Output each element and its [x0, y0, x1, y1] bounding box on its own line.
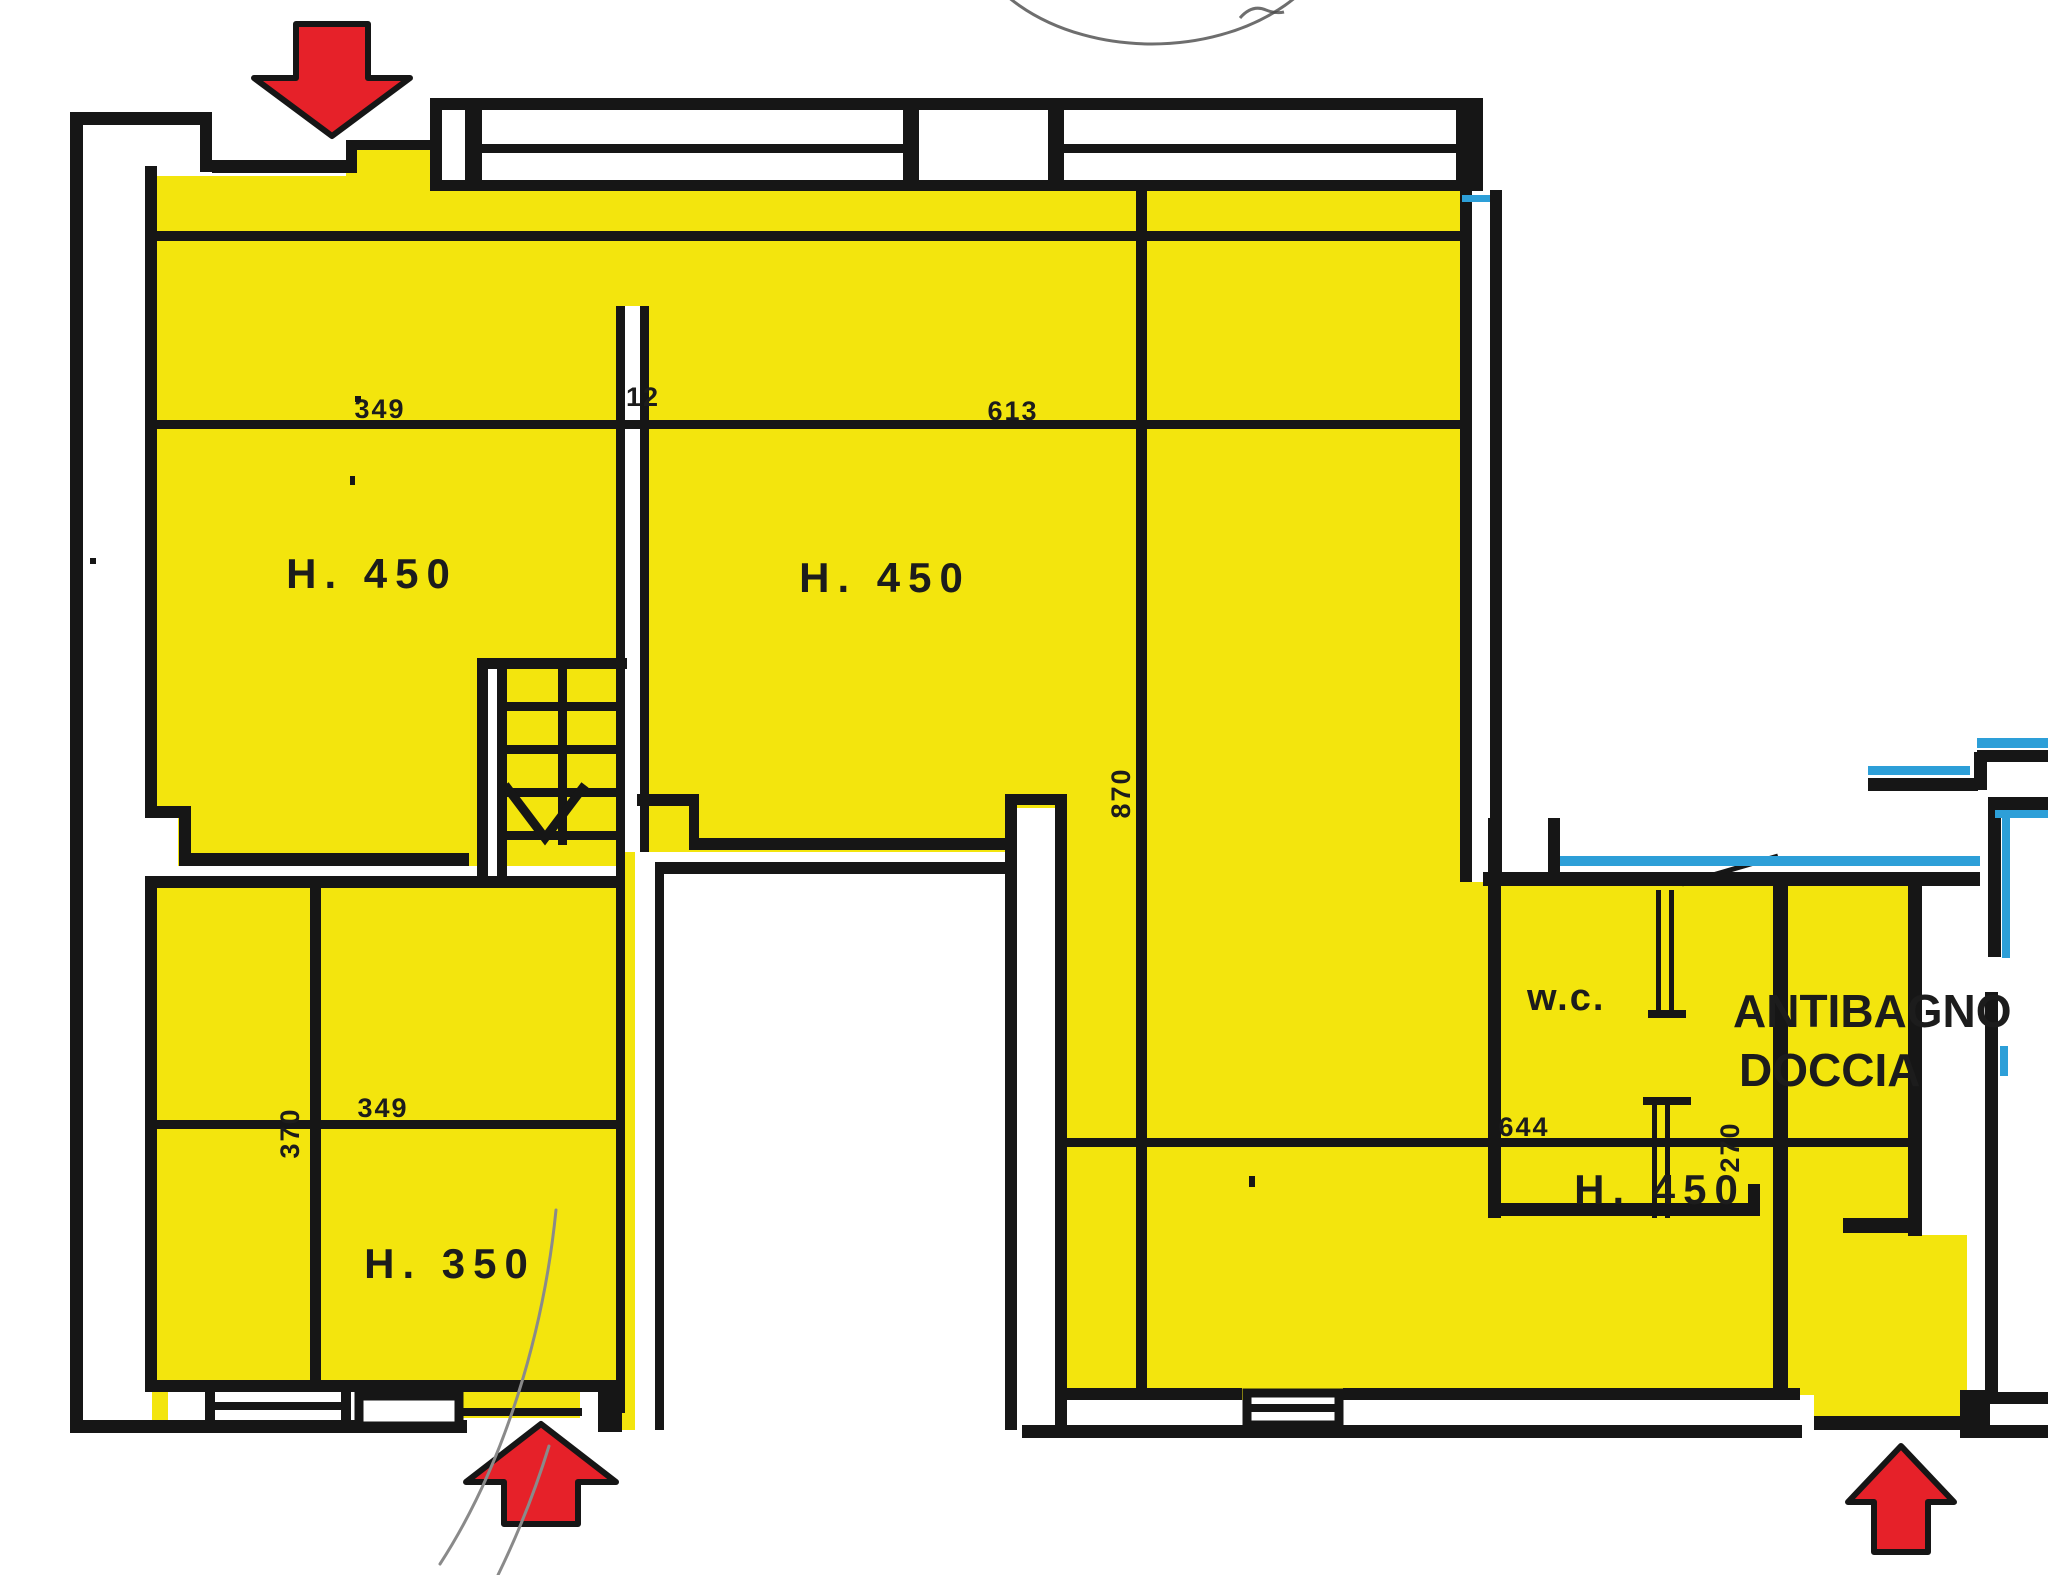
wall-gap	[152, 866, 622, 876]
window-mullion	[1456, 98, 1483, 191]
wc-wall	[1488, 886, 1501, 1218]
window-mullion	[1048, 98, 1064, 191]
terrace-edge	[1977, 750, 2048, 762]
window-mullion	[430, 98, 442, 191]
window-mullion	[903, 98, 919, 191]
wall-cavity	[83, 125, 145, 1430]
blue-line	[1560, 856, 1980, 866]
wall	[655, 862, 664, 1430]
threshold	[1814, 1416, 1962, 1430]
door-foot	[1648, 1010, 1686, 1018]
speck	[355, 396, 361, 402]
wall	[1005, 797, 1017, 1430]
threshold	[463, 1408, 582, 1416]
wall	[1993, 797, 2048, 810]
shaft-wall	[1488, 818, 1500, 876]
speck	[1249, 1176, 1255, 1187]
wall	[1990, 1425, 2048, 1438]
stair-wall-core	[488, 664, 497, 880]
entrance-arrow-top	[254, 24, 410, 136]
wall-notch	[145, 818, 178, 866]
blue-line	[2000, 1046, 2008, 1076]
dimension-label: 370	[275, 1107, 305, 1158]
blue-line	[1462, 195, 1490, 202]
wall	[1985, 992, 1998, 1395]
blue-line	[2002, 812, 2010, 958]
wall	[1022, 1425, 1802, 1438]
wall-cavity	[1472, 202, 1490, 882]
wall	[655, 862, 1012, 874]
speck	[1058, 1016, 1063, 1022]
door-leaf	[1656, 890, 1661, 1016]
wall	[346, 140, 438, 150]
dimension-label: 270	[1715, 1121, 1745, 1172]
scanned-floor-plan: H. 450 H. 450 H. 350 H. 450 w.c. ANTIBAG…	[0, 0, 2048, 1575]
wall	[145, 166, 157, 812]
dimension-line	[1060, 1138, 1912, 1147]
floor-plan-drawing: H. 450 H. 450 H. 350 H. 450 w.c. ANTIBAG…	[0, 0, 2048, 1575]
room-height-label: H. 450	[799, 554, 971, 601]
wall-channel	[1017, 808, 1055, 1430]
wall	[152, 876, 622, 888]
wall	[1773, 880, 1788, 1395]
blue-line	[1868, 766, 1970, 775]
door-leaf	[1669, 890, 1674, 1016]
wall	[1055, 1388, 1242, 1400]
wall	[689, 838, 1009, 850]
wall	[1055, 797, 1067, 1430]
wall-stub	[1843, 1218, 1917, 1233]
window-glass-line	[205, 1402, 351, 1410]
dimension-label: 613	[987, 396, 1038, 426]
room-height-label: H. 350	[364, 1240, 536, 1287]
speck	[350, 476, 355, 485]
door-gap	[1800, 1395, 1814, 1440]
window-mullion	[465, 98, 482, 191]
wall	[157, 1380, 622, 1392]
wall	[1460, 190, 1472, 882]
wall	[70, 112, 83, 1433]
window-frame	[430, 98, 1483, 110]
room-name-label: w.c.	[1526, 977, 1605, 1019]
wall-inner-line	[152, 231, 1464, 241]
room-name-label: DOCCIA	[1739, 1044, 1920, 1096]
bottom-wall-cavity	[1055, 1400, 1800, 1425]
wall	[212, 160, 352, 173]
dimension-label: 870	[1106, 767, 1136, 818]
wall	[1005, 794, 1067, 805]
wall	[70, 112, 212, 125]
wc-wall	[1748, 1184, 1760, 1216]
dividing-wall	[1136, 190, 1147, 1390]
entrance-arrow-bottom-right	[1848, 1446, 1954, 1552]
dimension-line	[152, 420, 1464, 429]
wall	[1490, 190, 1502, 882]
stair-wall	[477, 658, 488, 884]
window-box	[359, 1396, 459, 1426]
terrace-edge	[1868, 778, 1978, 791]
window-glass-line	[482, 144, 903, 153]
wall	[179, 853, 469, 866]
window-glass-line	[1064, 144, 1456, 153]
wall	[1988, 1392, 2048, 1404]
wall	[1988, 797, 2001, 957]
blue-line	[1977, 738, 2048, 748]
wall	[1343, 1388, 1800, 1400]
wall	[616, 850, 625, 1413]
corridor	[635, 852, 1005, 1445]
shaft-wall	[1548, 818, 1560, 876]
dimension-label: 349	[357, 1093, 408, 1123]
speck	[90, 558, 96, 564]
room-divider	[310, 888, 321, 1382]
wall	[200, 112, 212, 172]
room-height-label: H. 450	[286, 550, 458, 597]
dimension-label: 644	[1498, 1112, 1549, 1142]
partition-wall	[616, 306, 625, 852]
door-foot	[1643, 1097, 1691, 1105]
dimension-label: 349	[354, 394, 405, 424]
stair-wall	[497, 658, 507, 884]
dimension-label: 12	[626, 382, 660, 412]
room-name-label: ANTIBAGNO	[1733, 985, 2012, 1037]
stamp-arc	[964, 0, 1340, 44]
wall-post	[1960, 1390, 1990, 1438]
wall	[145, 876, 157, 1392]
window-glass-line	[1243, 1404, 1343, 1412]
window-frame	[430, 180, 1483, 191]
